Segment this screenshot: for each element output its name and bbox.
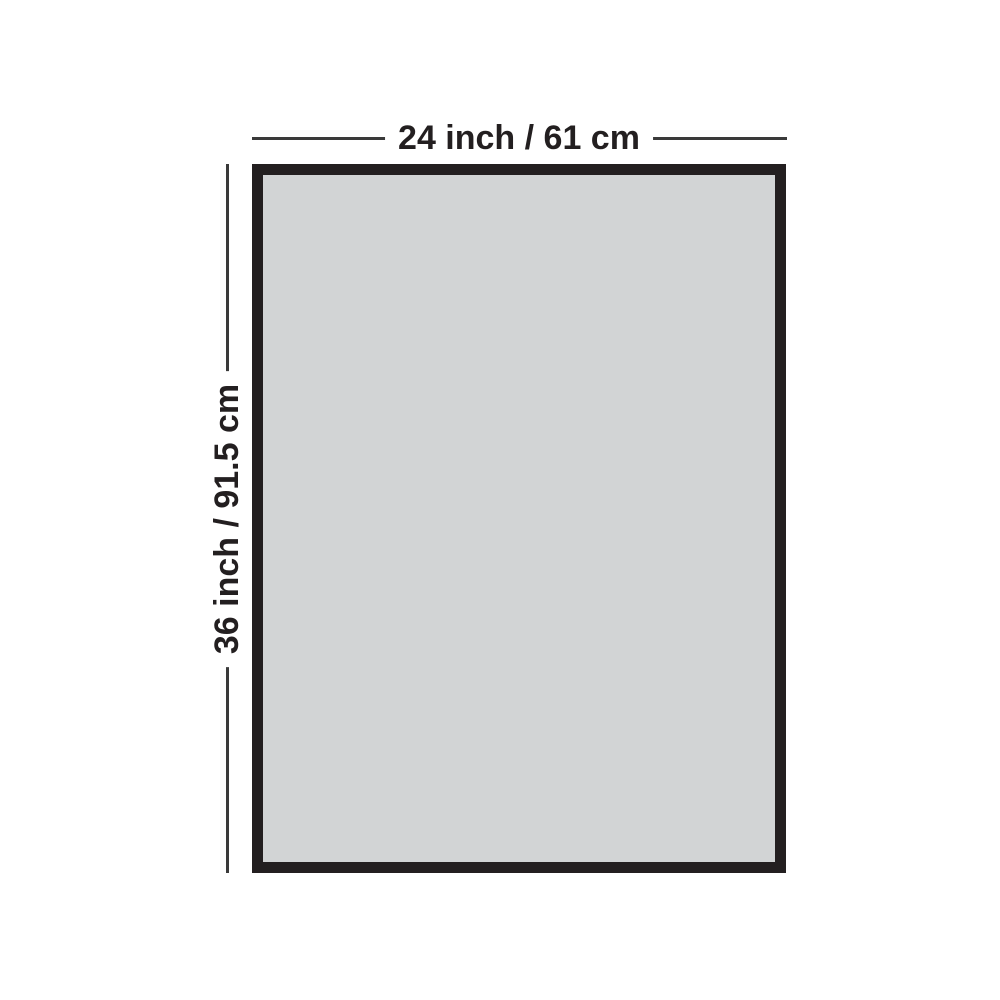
height-dimension-label: 36 inch / 91.5 cm bbox=[206, 371, 248, 667]
poster-frame bbox=[252, 164, 786, 873]
dimension-diagram: 24 inch / 61 cm 36 inch / 91.5 cm bbox=[0, 0, 1000, 1000]
poster-frame-fill bbox=[263, 175, 775, 862]
width-dimension-label: 24 inch / 61 cm bbox=[385, 117, 653, 159]
